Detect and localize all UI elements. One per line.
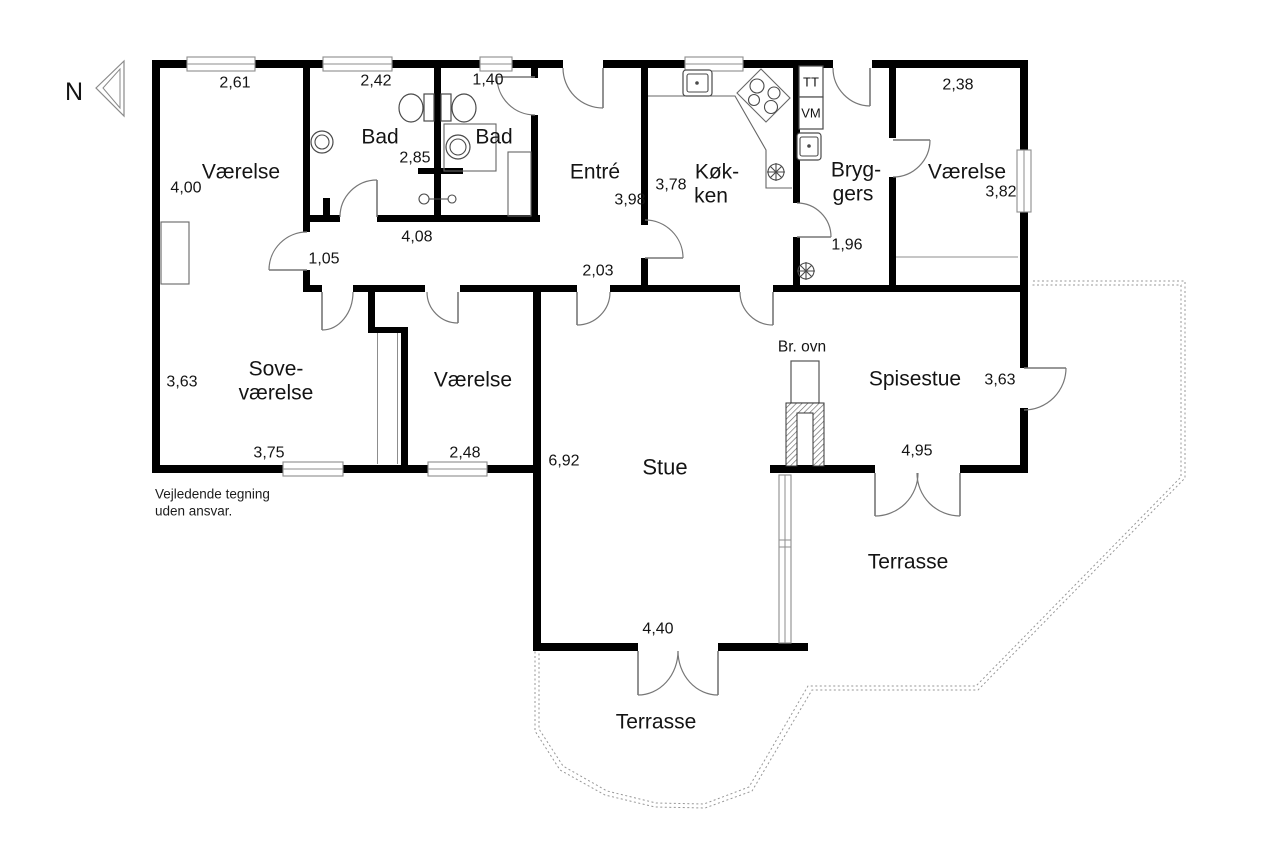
wall-segment — [960, 465, 1028, 473]
door-arc — [1024, 368, 1066, 410]
french-door-arc — [678, 651, 718, 695]
door-arc — [893, 140, 930, 177]
room-label-bad1: Bad — [361, 126, 398, 149]
room-label-bryggers-1: Bryg- — [831, 159, 881, 182]
dim-stue-width: 4,40 — [642, 621, 673, 638]
wall-segment — [889, 60, 896, 138]
shower-icon — [508, 152, 531, 216]
french-door-arc — [917, 473, 960, 516]
wardrobe — [378, 333, 398, 464]
dim-hall-passage: 2,03 — [582, 263, 613, 280]
wall-segment — [718, 643, 808, 651]
dim-bad1-depth: 2,85 — [399, 150, 430, 167]
dim-entre-depth: 3,98 — [614, 192, 645, 209]
dim-koekken-depth: 3,78 — [655, 177, 686, 194]
door-arc — [645, 220, 683, 258]
dim-vaerelse-s-width: 2,48 — [449, 445, 480, 462]
room-label-terrasse-east: Terrasse — [868, 551, 949, 574]
kitchen-sink-icon — [683, 70, 712, 96]
wall-segment — [889, 177, 896, 292]
room-label-bryggers-2: gers — [833, 183, 874, 206]
footer-note-line2: uden ansvar. — [155, 504, 232, 519]
wall-segment — [303, 60, 310, 232]
dim-vaerelse-ne-width: 2,38 — [942, 77, 973, 94]
wall-segment — [533, 292, 541, 465]
room-label-entre: Entré — [570, 161, 620, 184]
dim-hall-length: 4,08 — [401, 229, 432, 246]
wall-segment — [303, 285, 322, 292]
door-arc — [740, 292, 773, 325]
dim-spisestue-depth: 3,63 — [984, 372, 1015, 389]
wall-segment — [773, 285, 1028, 292]
room-label-vaerelse-nw: Værelse — [202, 161, 280, 184]
door-arc — [577, 292, 610, 325]
toilet-icon — [441, 94, 476, 122]
room-label-sovevaerelse-1: Sove- — [249, 358, 304, 381]
door-arc — [322, 292, 353, 330]
door-arc — [797, 203, 831, 237]
wall-segment — [353, 285, 425, 292]
door-arc — [833, 68, 870, 106]
chimney-icon — [786, 403, 824, 466]
dim-spisestue-width: 4,95 — [901, 443, 932, 460]
closet — [161, 222, 189, 284]
room-label-spisestue: Spisestue — [869, 368, 961, 391]
french-door-arc — [638, 651, 678, 695]
dim-bad2-width: 1,40 — [472, 72, 503, 89]
wall-segment — [533, 465, 541, 651]
room-label-sovevaerelse-2: værelse — [239, 382, 314, 405]
wall-segment — [1020, 408, 1028, 473]
wall-segment — [1020, 60, 1028, 368]
floor-plan-canvas: N Værelse Bad Bad Entré Køk- ken Bryg- g… — [0, 0, 1280, 853]
room-label-vaerelse-s: Værelse — [434, 369, 512, 392]
dim-stue-depth: 6,92 — [548, 453, 579, 470]
room-label-koekken-1: Køk- — [695, 161, 739, 184]
dim-vaerelse-nw-width: 2,61 — [219, 75, 250, 92]
dim-hall-width: 1,05 — [308, 251, 339, 268]
wall-segment — [531, 115, 538, 222]
dim-bad1-width: 2,42 — [360, 73, 391, 90]
wall-partition-stub — [323, 198, 330, 217]
dim-vaerelse-nw-depth: 4,00 — [170, 180, 201, 197]
door-arc — [427, 292, 458, 323]
wall-segment — [793, 237, 800, 292]
room-label-terrasse-south: Terrasse — [616, 711, 697, 734]
dim-bryggers-width: 1,96 — [831, 237, 862, 254]
wall-segment — [434, 60, 441, 222]
door-arc — [563, 68, 603, 108]
wood-stove-icon — [791, 361, 819, 403]
floor-drain-icon — [767, 163, 785, 181]
room-label-bad2: Bad — [475, 126, 512, 149]
footer-note-line1: Vejledende tegning — [155, 487, 270, 502]
north-arrow-icon — [96, 61, 124, 116]
dim-sovevaerelse-width: 3,75 — [253, 445, 284, 462]
label-wood-stove: Br. ovn — [778, 339, 826, 356]
room-label-koekken-2: ken — [694, 185, 728, 208]
dim-vaerelse-ne-depth: 3,82 — [985, 184, 1016, 201]
door-arc — [269, 232, 307, 270]
laundry-sink-icon — [797, 133, 821, 160]
label-tumble-dryer: TT — [803, 75, 819, 90]
stove-icon — [749, 79, 781, 114]
wall-segment — [460, 285, 577, 292]
room-label-vaerelse-ne: Værelse — [928, 161, 1006, 184]
sink-icon — [311, 131, 333, 153]
door-arc — [340, 180, 377, 217]
wall-closet-jog — [368, 288, 375, 333]
wall-segment — [533, 643, 638, 651]
wall-segment — [610, 285, 740, 292]
french-door-arc — [875, 473, 918, 516]
floor-plan: N Værelse Bad Bad Entré Køk- ken Bryg- g… — [0, 0, 1280, 853]
wall-closet-jog — [401, 327, 408, 465]
room-label-stue: Stue — [642, 455, 687, 480]
north-label: N — [65, 78, 83, 106]
wall-segment — [531, 60, 538, 78]
toilet-icon — [399, 94, 434, 122]
wall-segment — [152, 60, 160, 473]
label-washing-machine: VM — [801, 106, 821, 121]
dim-sovevaerelse-depth: 3,63 — [166, 374, 197, 391]
